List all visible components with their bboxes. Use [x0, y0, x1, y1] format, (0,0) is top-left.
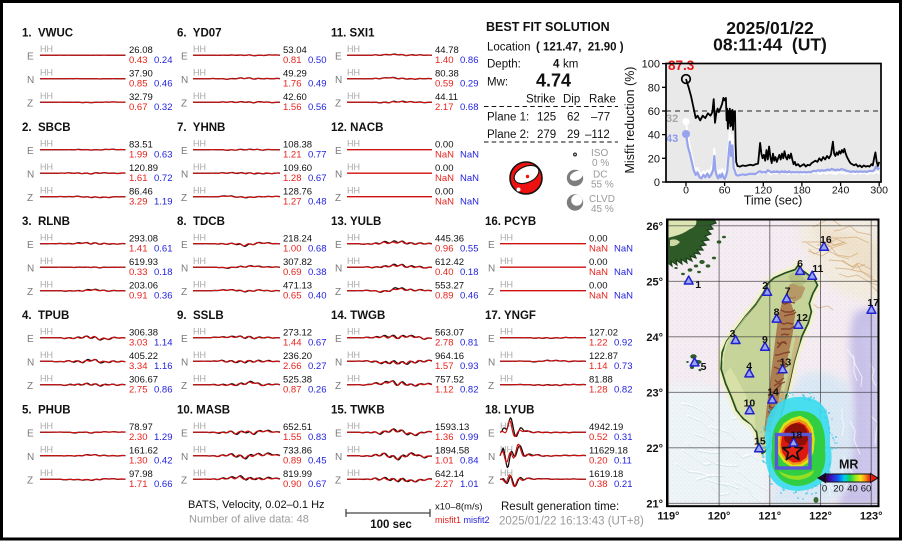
svg-text:0.83: 0.83: [308, 432, 327, 443]
svg-text:3: 3: [730, 328, 736, 340]
svg-text:20: 20: [648, 153, 660, 165]
svg-text:125: 125: [537, 112, 556, 124]
svg-text:1.21: 1.21: [283, 150, 302, 161]
svg-text:1.36: 1.36: [435, 432, 454, 443]
svg-text:NaN: NaN: [435, 150, 454, 161]
svg-text:0.29: 0.29: [460, 79, 479, 90]
svg-text:HH: HH: [347, 162, 360, 172]
svg-text:2.17: 2.17: [435, 102, 454, 113]
svg-text:2.66: 2.66: [283, 361, 302, 372]
svg-text:32: 32: [666, 113, 678, 125]
svg-text:HH: HH: [347, 350, 360, 360]
svg-text:0.65: 0.65: [283, 291, 302, 302]
svg-text:HH: HH: [40, 233, 53, 243]
svg-text:0.49: 0.49: [308, 79, 327, 90]
svg-text:0: 0: [822, 484, 827, 495]
svg-text:HH: HH: [193, 44, 206, 54]
svg-text:0.42: 0.42: [154, 456, 173, 467]
svg-text:0.20: 0.20: [589, 456, 608, 467]
svg-text:17. YNGF: 17. YNGF: [485, 310, 536, 322]
svg-text:Plane 2:: Plane 2:: [487, 129, 529, 141]
svg-text:1.28: 1.28: [283, 173, 302, 184]
svg-text:Z: Z: [335, 99, 341, 110]
svg-text:7: 7: [785, 286, 791, 298]
svg-text:N: N: [27, 452, 34, 463]
svg-text:2.30: 2.30: [129, 432, 148, 443]
svg-text:60: 60: [719, 185, 731, 197]
svg-text:HH: HH: [347, 421, 360, 431]
svg-text:25°: 25°: [646, 276, 663, 288]
svg-text:HH: HH: [193, 445, 206, 455]
svg-text:14: 14: [767, 387, 779, 399]
svg-text:HH: HH: [40, 374, 53, 384]
svg-text:E: E: [181, 240, 188, 251]
svg-text:1.40: 1.40: [435, 55, 454, 66]
svg-text:E: E: [488, 240, 495, 251]
svg-text:9. SSLB: 9. SSLB: [177, 310, 224, 322]
svg-text:E: E: [181, 429, 188, 440]
svg-text:N: N: [335, 170, 342, 181]
svg-text:279: 279: [537, 129, 556, 141]
svg-text:0.11: 0.11: [614, 456, 632, 467]
svg-text:29: 29: [567, 129, 580, 141]
svg-text:0.26: 0.26: [308, 385, 327, 396]
svg-text:HH: HH: [40, 256, 53, 266]
svg-text:0.45: 0.45: [308, 456, 327, 467]
svg-text:0.55: 0.55: [460, 244, 479, 255]
svg-text:HH: HH: [193, 374, 206, 384]
svg-text:0.48: 0.48: [308, 197, 327, 208]
svg-text:45 %: 45 %: [591, 204, 614, 215]
svg-text:3.29: 3.29: [129, 197, 148, 208]
svg-text:300: 300: [870, 185, 888, 197]
svg-text:0: 0: [683, 185, 689, 197]
svg-text:1.01: 1.01: [460, 479, 479, 490]
svg-text:0.32: 0.32: [154, 102, 173, 113]
svg-text:20: 20: [833, 484, 844, 495]
svg-text:Z: Z: [181, 381, 187, 392]
svg-text:0.36: 0.36: [154, 291, 173, 302]
svg-text:0.86: 0.86: [154, 385, 173, 396]
svg-text:0.99: 0.99: [460, 432, 479, 443]
svg-text:0.73: 0.73: [614, 361, 633, 372]
svg-text:HH: HH: [347, 256, 360, 266]
svg-text:2. SBCB: 2. SBCB: [22, 122, 71, 134]
svg-text:1.29: 1.29: [154, 432, 173, 443]
svg-text:N: N: [335, 264, 342, 275]
svg-text:0.93: 0.93: [460, 361, 479, 372]
svg-text:5: 5: [701, 361, 707, 373]
svg-text:E: E: [181, 146, 188, 157]
svg-text:4. TPUB: 4. TPUB: [22, 310, 69, 322]
svg-text:E: E: [181, 52, 188, 63]
svg-text:Mw:: Mw:: [487, 77, 508, 89]
svg-text:24°: 24°: [646, 332, 663, 344]
svg-text:N: N: [488, 264, 495, 275]
svg-text:40: 40: [847, 484, 858, 495]
svg-text:Number of alive data: 48: Number of alive data: 48: [189, 514, 309, 526]
svg-text:Z: Z: [27, 381, 33, 392]
svg-text:Z: Z: [181, 193, 187, 204]
svg-text:26°: 26°: [646, 221, 663, 233]
svg-text:3.34: 3.34: [129, 361, 148, 372]
svg-text:9: 9: [762, 334, 768, 346]
svg-text:NaN: NaN: [460, 173, 479, 184]
svg-text:0.72: 0.72: [154, 173, 173, 184]
svg-text:HH: HH: [500, 280, 513, 290]
svg-text:15. TWKB: 15. TWKB: [331, 405, 385, 417]
svg-text:0.59: 0.59: [435, 79, 454, 90]
svg-text:HH: HH: [40, 421, 53, 431]
svg-text:0.33: 0.33: [129, 267, 148, 278]
svg-text:0.40: 0.40: [308, 291, 327, 302]
svg-text:22°: 22°: [646, 443, 663, 455]
svg-text:23°: 23°: [646, 387, 663, 399]
svg-text:HH: HH: [500, 256, 513, 266]
svg-text:–112: –112: [585, 129, 610, 141]
svg-text:2.75: 2.75: [129, 385, 148, 396]
svg-text:0.67: 0.67: [308, 338, 327, 349]
svg-text:1.57: 1.57: [435, 361, 454, 372]
svg-text:0.69: 0.69: [283, 267, 302, 278]
svg-text:0.91: 0.91: [129, 291, 148, 302]
svg-text:Z: Z: [181, 476, 187, 487]
svg-text:4: 4: [746, 361, 752, 373]
svg-text:( 121.47, 21.90 ): ( 121.47, 21.90 ): [536, 42, 624, 54]
svg-text:N: N: [335, 358, 342, 369]
svg-text:80: 80: [648, 82, 660, 94]
svg-text:HH: HH: [40, 468, 53, 478]
svg-text:Misfit reduction (%): Misfit reduction (%): [623, 67, 637, 174]
svg-text:0.38: 0.38: [589, 479, 608, 490]
svg-text:0.18: 0.18: [154, 267, 173, 278]
svg-text:HH: HH: [347, 44, 360, 54]
svg-text:N: N: [181, 170, 188, 181]
svg-text:1.22: 1.22: [589, 338, 608, 349]
svg-text:E: E: [27, 146, 34, 157]
svg-text:BEST FIT SOLUTION: BEST FIT SOLUTION: [486, 20, 610, 34]
svg-text:N: N: [27, 358, 34, 369]
svg-text:E: E: [27, 52, 34, 63]
svg-text:1.27: 1.27: [283, 197, 302, 208]
svg-text:0.84: 0.84: [460, 456, 479, 467]
svg-text:13: 13: [780, 356, 792, 368]
svg-text:10. MASB: 10. MASB: [177, 405, 230, 417]
svg-text:km: km: [563, 59, 578, 71]
svg-text:HH: HH: [193, 139, 206, 149]
svg-text:0.46: 0.46: [460, 291, 479, 302]
svg-text:MR: MR: [839, 458, 858, 472]
svg-text:60: 60: [861, 484, 872, 495]
svg-text:HH: HH: [193, 421, 206, 431]
svg-text:2.78: 2.78: [435, 338, 454, 349]
svg-text:HH: HH: [40, 327, 53, 337]
svg-text:HH: HH: [347, 468, 360, 478]
svg-text:HH: HH: [347, 91, 360, 101]
svg-text:1.41: 1.41: [129, 244, 148, 255]
svg-text:HH: HH: [193, 162, 206, 172]
svg-text:NaN: NaN: [435, 173, 454, 184]
svg-text:HH: HH: [40, 139, 53, 149]
svg-text:misfit1 misfit2: misfit1 misfit2: [435, 515, 490, 525]
svg-text:1.71: 1.71: [129, 479, 148, 490]
svg-text:0.82: 0.82: [614, 385, 633, 396]
svg-text:E: E: [335, 334, 342, 345]
svg-text:0: 0: [654, 177, 660, 189]
svg-text:NaN: NaN: [589, 291, 608, 302]
svg-text:Strike: Strike: [526, 94, 555, 106]
svg-text:Z: Z: [335, 193, 341, 204]
svg-text:0.87: 0.87: [283, 385, 302, 396]
svg-text:11: 11: [812, 263, 823, 275]
svg-text:Rake: Rake: [589, 94, 616, 106]
svg-text:60: 60: [648, 106, 660, 118]
svg-text:0.89: 0.89: [283, 456, 302, 467]
svg-text:BATS, Velocity, 0.02–0.1 Hz: BATS, Velocity, 0.02–0.1 Hz: [188, 499, 325, 511]
svg-text:1.99: 1.99: [129, 150, 148, 161]
svg-text:Z: Z: [488, 476, 494, 487]
svg-text:43: 43: [666, 133, 678, 145]
svg-text:Time (sec): Time (sec): [744, 194, 803, 208]
svg-text:N: N: [27, 170, 34, 181]
svg-text:4.74: 4.74: [536, 71, 571, 91]
svg-text:240: 240: [832, 185, 850, 197]
svg-text:1.12: 1.12: [435, 385, 454, 396]
svg-text:Z: Z: [27, 287, 33, 298]
svg-text:0.50: 0.50: [308, 55, 327, 66]
svg-text:E: E: [27, 240, 34, 251]
svg-text:HH: HH: [500, 350, 513, 360]
svg-text:1: 1: [695, 279, 701, 291]
svg-text:0.21: 0.21: [614, 479, 633, 490]
svg-text:Z: Z: [181, 99, 187, 110]
svg-text:HH: HH: [347, 327, 360, 337]
svg-text:NaN: NaN: [614, 267, 633, 278]
svg-text:14. TWGB: 14. TWGB: [331, 310, 385, 322]
svg-text:0.68: 0.68: [460, 102, 479, 113]
svg-text:E: E: [335, 429, 342, 440]
svg-text:HH: HH: [193, 468, 206, 478]
svg-text:0.66: 0.66: [154, 479, 173, 490]
svg-text:NaN: NaN: [435, 197, 454, 208]
svg-text:–77: –77: [591, 112, 610, 124]
svg-text:0.89: 0.89: [435, 291, 454, 302]
svg-text:7. YHNB: 7. YHNB: [177, 122, 225, 134]
svg-text:HH: HH: [40, 445, 53, 455]
svg-text:HH: HH: [347, 139, 360, 149]
svg-text:8: 8: [774, 307, 780, 319]
svg-text:N: N: [335, 452, 342, 463]
svg-text:122°: 122°: [809, 511, 832, 523]
svg-text:NaN: NaN: [589, 267, 608, 278]
svg-text:NaN: NaN: [460, 197, 479, 208]
svg-text:11. SXI1: 11. SXI1: [331, 28, 375, 40]
svg-text:HH: HH: [193, 186, 206, 196]
svg-text:N: N: [181, 452, 188, 463]
svg-text:Dip: Dip: [563, 94, 580, 106]
svg-text:E: E: [27, 429, 34, 440]
svg-text:1.56: 1.56: [283, 102, 302, 113]
svg-text:100: 100: [642, 59, 660, 71]
svg-text:21°: 21°: [646, 498, 663, 510]
svg-text:6. YD07: 6. YD07: [177, 28, 222, 40]
svg-text:0.46: 0.46: [154, 79, 173, 90]
svg-text:HH: HH: [500, 233, 513, 243]
svg-text:0.77: 0.77: [308, 150, 327, 161]
svg-text:N: N: [27, 75, 34, 86]
svg-text:HH: HH: [347, 374, 360, 384]
svg-text:NaN: NaN: [460, 150, 479, 161]
svg-text:0.18: 0.18: [460, 267, 479, 278]
svg-text:E: E: [181, 334, 188, 345]
svg-text:NaN: NaN: [589, 244, 608, 255]
svg-text:HH: HH: [193, 280, 206, 290]
svg-text:0.27: 0.27: [308, 361, 327, 372]
svg-text:10: 10: [744, 397, 756, 409]
svg-text:123°: 123°: [860, 511, 883, 523]
svg-text:Depth:: Depth:: [487, 59, 521, 71]
svg-text:119°: 119°: [657, 511, 679, 523]
svg-text:2: 2: [762, 280, 768, 292]
svg-text:NaN: NaN: [614, 244, 633, 255]
svg-text:0.67: 0.67: [308, 173, 327, 184]
svg-text:NaN: NaN: [614, 291, 633, 302]
svg-text:HH: HH: [40, 44, 53, 54]
svg-text:1.30: 1.30: [129, 456, 148, 467]
svg-text:Z: Z: [27, 99, 33, 110]
svg-text:40: 40: [648, 130, 660, 142]
svg-text:0.81: 0.81: [460, 338, 479, 349]
svg-text:HH: HH: [193, 350, 206, 360]
svg-text:N: N: [181, 75, 188, 86]
svg-text:HH: HH: [193, 233, 206, 243]
svg-text:HH: HH: [193, 327, 206, 337]
svg-text:87.3: 87.3: [668, 58, 695, 73]
svg-text:Z: Z: [488, 381, 494, 392]
svg-text:HH: HH: [347, 186, 360, 196]
svg-text:12: 12: [796, 312, 808, 324]
svg-text:0.82: 0.82: [460, 385, 479, 396]
svg-text:HH: HH: [40, 162, 53, 172]
svg-text:N: N: [181, 264, 188, 275]
svg-text:12. NACB: 12. NACB: [331, 122, 383, 134]
svg-text:0.31: 0.31: [614, 432, 633, 443]
svg-text:18. LYUB: 18. LYUB: [485, 405, 534, 417]
svg-text:08:11:44 (UT): 08:11:44 (UT): [713, 35, 827, 55]
svg-text:1.16: 1.16: [154, 361, 173, 372]
svg-text:0.40: 0.40: [435, 267, 454, 278]
svg-text:Plane 1:: Plane 1:: [487, 112, 529, 124]
svg-text:0.56: 0.56: [308, 102, 327, 113]
svg-text:4: 4: [553, 59, 560, 71]
svg-text:HH: HH: [40, 350, 53, 360]
svg-text:1.28: 1.28: [589, 385, 608, 396]
svg-text:HH: HH: [193, 91, 206, 101]
svg-text:0.67: 0.67: [129, 102, 148, 113]
svg-text:Z: Z: [27, 193, 33, 204]
svg-text:0.52: 0.52: [589, 432, 608, 443]
svg-text:E: E: [27, 334, 34, 345]
svg-text:Location: Location: [487, 42, 530, 54]
svg-text:1.19: 1.19: [154, 197, 173, 208]
svg-text:6: 6: [797, 258, 803, 270]
svg-text:62: 62: [567, 112, 580, 124]
svg-text:HH: HH: [40, 68, 53, 78]
svg-text:0.24: 0.24: [154, 55, 173, 66]
svg-text:0.90: 0.90: [283, 479, 302, 490]
svg-text:0.43: 0.43: [129, 55, 148, 66]
svg-text:0.92: 0.92: [614, 338, 633, 349]
svg-text:3. RLNB: 3. RLNB: [22, 216, 70, 228]
svg-text:HH: HH: [193, 68, 206, 78]
svg-text:0.63: 0.63: [154, 150, 173, 161]
svg-text:E: E: [335, 52, 342, 63]
svg-text:HH: HH: [500, 327, 513, 337]
svg-text:HH: HH: [347, 233, 360, 243]
svg-text:100 sec: 100 sec: [370, 519, 412, 531]
svg-text:0.38: 0.38: [308, 267, 327, 278]
svg-text:18: 18: [791, 430, 803, 442]
svg-text:N: N: [335, 75, 342, 86]
svg-text:1.01: 1.01: [435, 456, 454, 467]
svg-text:Z: Z: [27, 476, 33, 487]
svg-text:Z: Z: [181, 287, 187, 298]
svg-text:0.86: 0.86: [460, 55, 479, 66]
svg-text:0.67: 0.67: [308, 479, 327, 490]
svg-text:1.55: 1.55: [283, 432, 302, 443]
svg-text:15: 15: [754, 435, 766, 447]
svg-text:E: E: [335, 146, 342, 157]
svg-text:N: N: [488, 358, 495, 369]
svg-text:1.76: 1.76: [283, 79, 302, 90]
svg-text:1.44: 1.44: [283, 338, 302, 349]
svg-text:HH: HH: [40, 280, 53, 290]
svg-text:3.03: 3.03: [129, 338, 148, 349]
svg-text:E: E: [335, 240, 342, 251]
svg-text:55 %: 55 %: [591, 180, 614, 191]
svg-text:x10–8(m/s): x10–8(m/s): [435, 502, 483, 513]
svg-text:0.81: 0.81: [283, 55, 302, 66]
svg-text:1.14: 1.14: [154, 338, 173, 349]
svg-text:1. VWUC: 1. VWUC: [22, 28, 73, 40]
svg-text:2025/01/22 16:13:43 (UT+8): 2025/01/22 16:13:43 (UT+8): [499, 516, 644, 528]
svg-text:Z: Z: [335, 476, 341, 487]
svg-text:Result generation time:: Result generation time:: [501, 501, 619, 513]
svg-text:N: N: [488, 452, 495, 463]
svg-text:HH: HH: [193, 256, 206, 266]
svg-text:Z: Z: [335, 287, 341, 298]
svg-text:E: E: [488, 429, 495, 440]
svg-text:2.27: 2.27: [435, 479, 454, 490]
svg-text:120°: 120°: [708, 511, 731, 523]
svg-text:0.61: 0.61: [154, 244, 173, 255]
svg-text:1.00: 1.00: [283, 244, 302, 255]
svg-text:0.96: 0.96: [435, 244, 454, 255]
svg-text:16: 16: [820, 234, 832, 246]
svg-text:E: E: [488, 334, 495, 345]
svg-text:Z: Z: [335, 381, 341, 392]
svg-text:0.85: 0.85: [129, 79, 148, 90]
svg-text:8. TDCB: 8. TDCB: [177, 216, 225, 228]
svg-text:1.14: 1.14: [589, 361, 608, 372]
svg-text:N: N: [181, 358, 188, 369]
svg-text:HH: HH: [40, 91, 53, 101]
svg-text:17: 17: [867, 297, 879, 309]
svg-text:HH: HH: [40, 186, 53, 196]
svg-text:16. PCYB: 16. PCYB: [485, 216, 536, 228]
svg-text:HH: HH: [347, 280, 360, 290]
svg-text:HH: HH: [500, 374, 513, 384]
